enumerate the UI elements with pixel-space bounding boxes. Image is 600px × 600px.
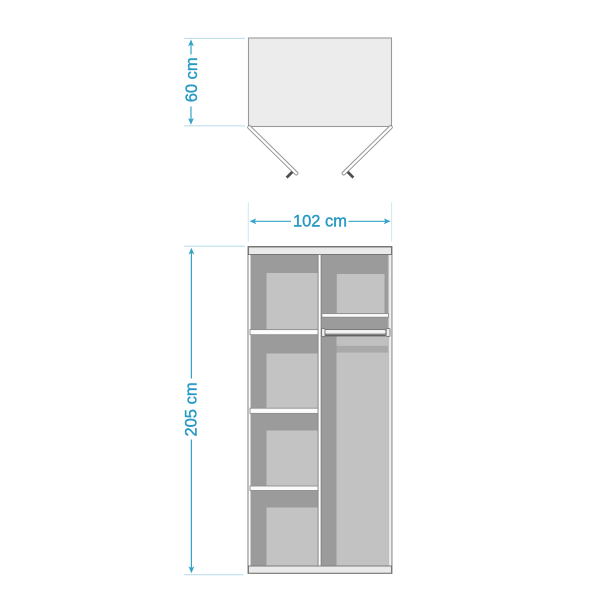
svg-text:205 cm: 205 cm	[182, 382, 200, 436]
svg-text:102 cm: 102 cm	[293, 213, 347, 231]
svg-text:60 cm: 60 cm	[183, 57, 201, 102]
